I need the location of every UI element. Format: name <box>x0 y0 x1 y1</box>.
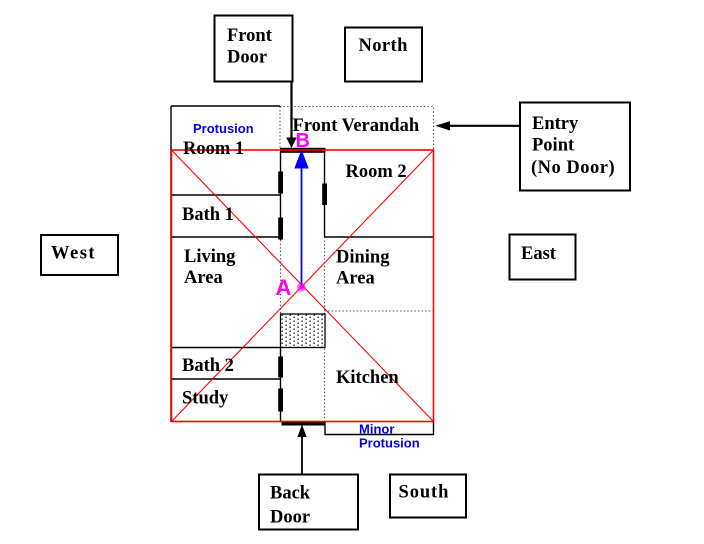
svg-text:Front: Front <box>227 26 273 46</box>
svg-text:Bath 1: Bath 1 <box>182 205 234 225</box>
svg-text:South: South <box>399 483 450 503</box>
svg-text:Point: Point <box>532 136 575 156</box>
svg-text:Room 2: Room 2 <box>346 162 407 182</box>
svg-text:Living: Living <box>184 247 236 267</box>
svg-text:Back: Back <box>270 484 311 504</box>
svg-text:Area: Area <box>184 268 223 288</box>
svg-text:(No Door): (No Door) <box>531 158 615 178</box>
svg-text:Protusion: Protusion <box>193 121 254 136</box>
svg-text:West: West <box>51 244 96 264</box>
svg-text:Dining: Dining <box>336 248 390 268</box>
svg-text:Minor: Minor <box>359 422 394 437</box>
svg-text:East: East <box>521 244 557 264</box>
svg-text:Bath 2: Bath 2 <box>182 356 234 376</box>
svg-text:A: A <box>276 275 292 300</box>
svg-text:Front Verandah: Front Verandah <box>293 116 420 136</box>
svg-text:Kitchen: Kitchen <box>336 368 399 388</box>
svg-text:Door: Door <box>270 508 310 528</box>
svg-text:Door: Door <box>227 48 267 68</box>
svg-text:Entry: Entry <box>532 114 579 134</box>
svg-text:Study: Study <box>182 389 229 409</box>
svg-text:North: North <box>359 36 409 56</box>
svg-text:Protusion: Protusion <box>359 436 420 451</box>
svg-text:Room 1: Room 1 <box>183 139 244 159</box>
svg-text:Area: Area <box>336 269 375 289</box>
